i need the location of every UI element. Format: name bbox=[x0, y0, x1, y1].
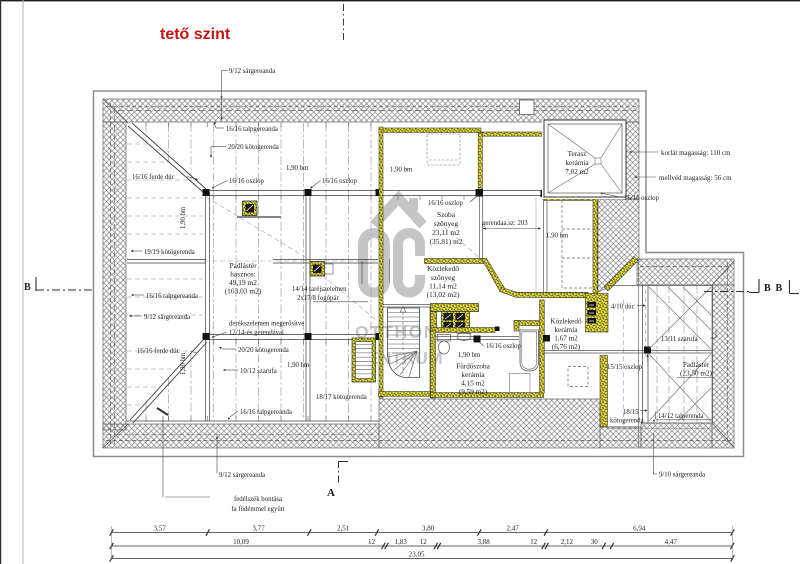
svg-text:1,67 m2: 1,67 m2 bbox=[554, 335, 578, 343]
svg-text:fedélszék bontása: fedélszék bontása bbox=[234, 496, 282, 503]
svg-text:(163,03 m2): (163,03 m2) bbox=[225, 287, 262, 296]
svg-text:(35,81) m2: (35,81) m2 bbox=[430, 237, 463, 246]
svg-text:szőnyeg: szőnyeg bbox=[434, 219, 459, 228]
svg-text:23,11 m2: 23,11 m2 bbox=[432, 228, 460, 237]
svg-text:Terasz: Terasz bbox=[568, 150, 587, 158]
svg-text:12/14-és gerendával: 12/14-és gerendával bbox=[229, 330, 284, 337]
svg-text:12: 12 bbox=[530, 538, 538, 546]
svg-text:4,15 m2: 4,15 m2 bbox=[461, 380, 485, 388]
svg-text:3,77: 3,77 bbox=[252, 525, 265, 533]
svg-text:9/10 sárgereanda: 9/10 sárgereanda bbox=[659, 472, 705, 479]
svg-text:1,83: 1,83 bbox=[395, 538, 408, 546]
svg-text:B: B bbox=[776, 283, 783, 294]
svg-text:1,90 bm: 1,90 bm bbox=[180, 352, 187, 375]
svg-text:10/12 szarufa: 10/12 szarufa bbox=[240, 368, 277, 375]
svg-text:2x17/8 fogópár: 2x17/8 fogópár bbox=[297, 295, 339, 302]
svg-text:20/20 kötogerenda: 20/20 kötogerenda bbox=[238, 347, 289, 354]
svg-text:16/16 ferde dúc: 16/16 ferde dúc bbox=[132, 174, 175, 181]
svg-text:4,47: 4,47 bbox=[665, 538, 678, 546]
svg-text:9/12 sárgereanda: 9/12 sárgereanda bbox=[144, 314, 190, 321]
svg-text:4/10 dúc: 4/10 dúc bbox=[611, 304, 635, 311]
svg-text:16/16 oszlop: 16/16 oszlop bbox=[486, 343, 522, 350]
svg-text:16/16 talpgereanda: 16/16 talpgereanda bbox=[146, 293, 198, 300]
svg-text:B: B bbox=[24, 282, 31, 293]
svg-text:gerendaa.sz: 203: gerendaa.sz: 203 bbox=[482, 220, 528, 227]
svg-text:derékszelemen megerősítve: derékszelemen megerősítve bbox=[229, 321, 304, 328]
svg-text:fa födémmel együtt: fa födémmel együtt bbox=[231, 506, 284, 513]
svg-text:Közlekedő: Közlekedő bbox=[550, 318, 582, 326]
svg-text:tető szint: tető szint bbox=[160, 26, 231, 43]
svg-text:Fürdőszoba: Fürdőszoba bbox=[456, 363, 490, 371]
svg-text:1,90 bm: 1,90 bm bbox=[458, 352, 481, 359]
svg-text:mellvéd magasság: 56 cm: mellvéd magasság: 56 cm bbox=[659, 174, 732, 182]
svg-text:1,90 bm: 1,90 bm bbox=[180, 206, 187, 229]
svg-text:14/14 taréjszelemen: 14/14 taréjszelemen bbox=[292, 286, 347, 293]
svg-text:9/12 sárgereanda: 9/12 sárgereanda bbox=[219, 472, 265, 479]
svg-text:B: B bbox=[764, 283, 771, 294]
svg-text:16/16 talpgereanda: 16/16 talpgereanda bbox=[240, 409, 292, 416]
svg-text:2,12: 2,12 bbox=[561, 538, 574, 546]
svg-text:korlát magasság: 110 cm: korlát magasság: 110 cm bbox=[661, 149, 731, 157]
svg-text:9/12 sárgereanda: 9/12 sárgereanda bbox=[229, 68, 275, 75]
svg-text:19/19 kötögerenda: 19/19 kötögerenda bbox=[144, 249, 195, 256]
svg-text:3,57: 3,57 bbox=[153, 525, 166, 533]
svg-text:16/16 talpgereanda: 16/16 talpgereanda bbox=[226, 126, 278, 133]
svg-text:10,09: 10,09 bbox=[233, 538, 249, 546]
svg-text:13/11 szarufa: 13/11 szarufa bbox=[661, 336, 698, 343]
svg-text:16/16 ferde dúc: 16/16 ferde dúc bbox=[137, 348, 180, 355]
svg-text:16/16 oszlop: 16/16 oszlop bbox=[624, 195, 660, 202]
svg-text:12: 12 bbox=[368, 538, 376, 546]
svg-text:7,02 m2: 7,02 m2 bbox=[565, 168, 589, 176]
svg-text:18/17 kötogerenda: 18/17 kötogerenda bbox=[316, 394, 367, 401]
svg-text:kötogerenda: kötogerenda bbox=[610, 418, 644, 425]
svg-text:(23,50 m2): (23,50 m2) bbox=[680, 370, 713, 378]
svg-text:Közlekedő: Közlekedő bbox=[427, 264, 459, 273]
svg-text:20/20 kötogerenda: 20/20 kötogerenda bbox=[228, 144, 279, 151]
svg-text:1,90 bm: 1,90 bm bbox=[286, 165, 309, 172]
svg-text:30: 30 bbox=[591, 538, 599, 546]
svg-text:A: A bbox=[327, 487, 335, 499]
svg-text:Padlástér: Padlástér bbox=[683, 361, 710, 369]
svg-text:23,05: 23,05 bbox=[409, 551, 425, 559]
svg-text:kerámia: kerámia bbox=[461, 371, 485, 379]
svg-text:(13,02 m2): (13,02 m2) bbox=[427, 290, 460, 299]
svg-text:(6,76 m2): (6,76 m2) bbox=[552, 343, 581, 351]
svg-text:6,94: 6,94 bbox=[633, 525, 646, 533]
svg-text:1,90 bm: 1,90 bm bbox=[546, 233, 569, 240]
svg-text:14/12 talperenda: 14/12 talperenda bbox=[658, 413, 703, 420]
svg-text:kerámia: kerámia bbox=[565, 159, 589, 167]
svg-text:12: 12 bbox=[420, 538, 428, 546]
svg-text:2,51: 2,51 bbox=[337, 525, 350, 533]
svg-text:16/16 oszlop: 16/16 oszlop bbox=[428, 200, 464, 207]
svg-text:Szoba: Szoba bbox=[437, 210, 456, 219]
svg-text:(9,59 m2): (9,59 m2) bbox=[459, 388, 488, 396]
svg-text:16/16 oszlop: 16/16 oszlop bbox=[229, 178, 265, 185]
svg-text:16/16 oszlop: 16/16 oszlop bbox=[322, 178, 358, 185]
svg-text:3,88: 3,88 bbox=[477, 538, 490, 546]
svg-text:2,47: 2,47 bbox=[506, 525, 519, 533]
svg-text:3,80: 3,80 bbox=[422, 525, 435, 533]
svg-text:kerámia: kerámia bbox=[554, 326, 578, 334]
svg-text:1,90 bm: 1,90 bm bbox=[390, 167, 413, 174]
svg-text:15/15 oszlop: 15/15 oszlop bbox=[607, 364, 643, 371]
svg-text:1,90 bm: 1,90 bm bbox=[287, 362, 310, 369]
svg-text:18/15: 18/15 bbox=[623, 409, 639, 416]
